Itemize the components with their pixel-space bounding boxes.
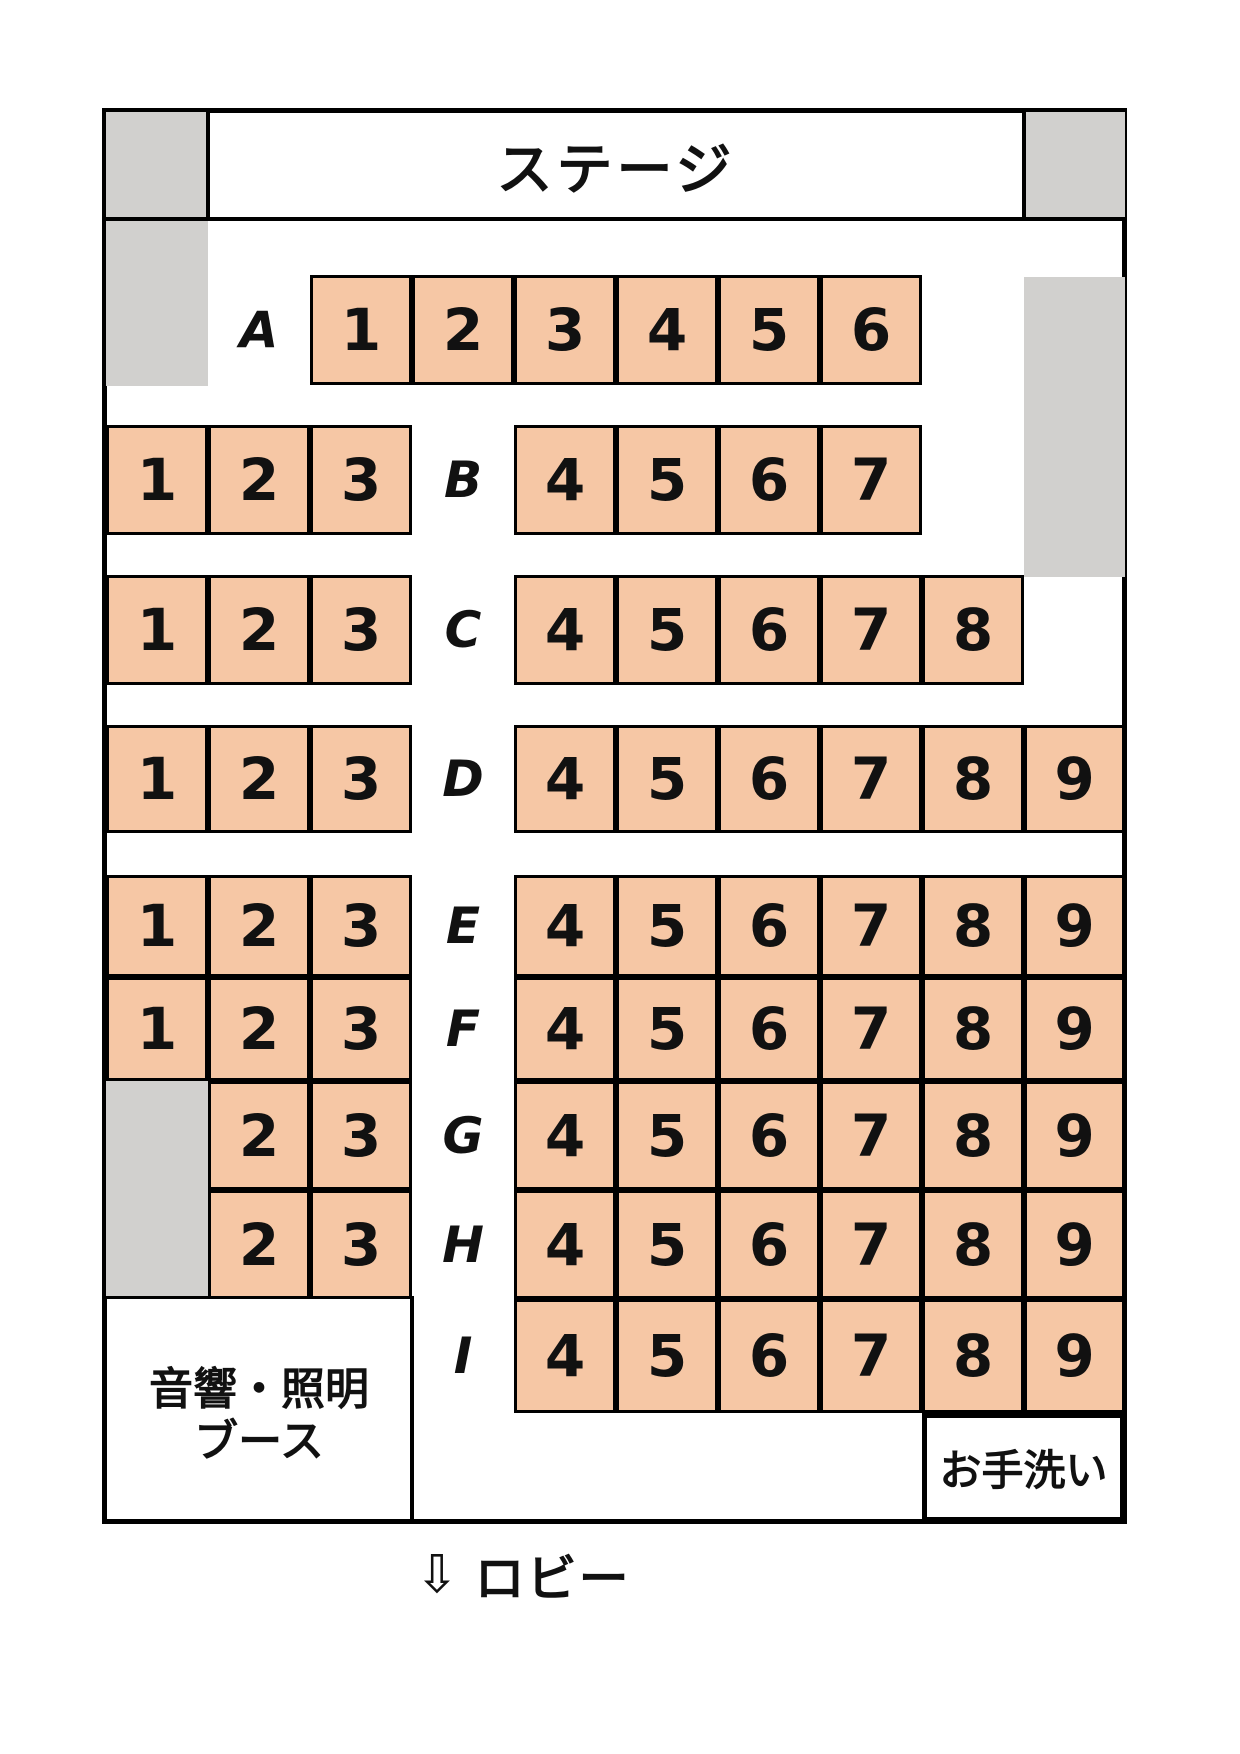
seat-H8[interactable]: 8 (922, 1190, 1024, 1299)
seat-D1[interactable]: 1 (106, 725, 208, 833)
seat-B4[interactable]: 4 (514, 425, 616, 535)
blocked-area-right-strip (1024, 277, 1125, 577)
seat-C6[interactable]: 6 (718, 575, 820, 685)
row-label-H: H (412, 1190, 514, 1299)
blocked-area-top-left-cell (106, 112, 208, 219)
seat-C1[interactable]: 1 (106, 575, 208, 685)
row-label-D: D (412, 725, 514, 833)
seat-H7[interactable]: 7 (820, 1190, 922, 1299)
seat-D2[interactable]: 2 (208, 725, 310, 833)
seat-E2[interactable]: 2 (208, 875, 310, 977)
row-label-I: I (412, 1299, 514, 1413)
seat-C4[interactable]: 4 (514, 575, 616, 685)
seat-G2[interactable]: 2 (208, 1081, 310, 1190)
seat-E6[interactable]: 6 (718, 875, 820, 977)
seat-I8[interactable]: 8 (922, 1299, 1024, 1413)
seat-A6[interactable]: 6 (820, 275, 922, 385)
seat-B2[interactable]: 2 (208, 425, 310, 535)
seat-G9[interactable]: 9 (1024, 1081, 1125, 1190)
seat-G3[interactable]: 3 (310, 1081, 412, 1190)
row-label-E: E (412, 875, 514, 977)
seat-F4[interactable]: 4 (514, 977, 616, 1081)
seat-F8[interactable]: 8 (922, 977, 1024, 1081)
seat-A1[interactable]: 1 (310, 275, 412, 385)
seat-D5[interactable]: 5 (616, 725, 718, 833)
seat-I6[interactable]: 6 (718, 1299, 820, 1413)
seat-B3[interactable]: 3 (310, 425, 412, 535)
blocked-area-left-upper (106, 219, 208, 386)
seat-E1[interactable]: 1 (106, 875, 208, 977)
seat-C2[interactable]: 2 (208, 575, 310, 685)
seat-B5[interactable]: 5 (616, 425, 718, 535)
seat-D3[interactable]: 3 (310, 725, 412, 833)
seat-D6[interactable]: 6 (718, 725, 820, 833)
seat-E3[interactable]: 3 (310, 875, 412, 977)
restroom-box: お手洗い (922, 1413, 1125, 1522)
seat-I9[interactable]: 9 (1024, 1299, 1125, 1413)
seat-D9[interactable]: 9 (1024, 725, 1125, 833)
seat-G5[interactable]: 5 (616, 1081, 718, 1190)
row-label-A: A (208, 275, 310, 385)
seat-G8[interactable]: 8 (922, 1081, 1024, 1190)
seat-D8[interactable]: 8 (922, 725, 1024, 833)
seat-D4[interactable]: 4 (514, 725, 616, 833)
row-label-B: B (412, 425, 514, 535)
restroom-label: お手洗い (939, 1437, 1107, 1498)
seat-A3[interactable]: 3 (514, 275, 616, 385)
seat-E8[interactable]: 8 (922, 875, 1024, 977)
seat-I4[interactable]: 4 (514, 1299, 616, 1413)
seat-E7[interactable]: 7 (820, 875, 922, 977)
seat-C3[interactable]: 3 (310, 575, 412, 685)
seat-F7[interactable]: 7 (820, 977, 922, 1081)
seat-G4[interactable]: 4 (514, 1081, 616, 1190)
seat-E5[interactable]: 5 (616, 875, 718, 977)
seat-I5[interactable]: 5 (616, 1299, 718, 1413)
blocked-area-left-lower (106, 1081, 208, 1299)
blocked-area-top-right-cell (1024, 112, 1125, 219)
seat-F2[interactable]: 2 (208, 977, 310, 1081)
seat-B6[interactable]: 6 (718, 425, 820, 535)
seat-H3[interactable]: 3 (310, 1190, 412, 1299)
seat-I7[interactable]: 7 (820, 1299, 922, 1413)
booth-label-line2: ブース (194, 1416, 324, 1468)
seat-C7[interactable]: 7 (820, 575, 922, 685)
seat-F5[interactable]: 5 (616, 977, 718, 1081)
seat-F3[interactable]: 3 (310, 977, 412, 1081)
seat-B7[interactable]: 7 (820, 425, 922, 535)
seating-chart: ステージ 音響・照明 ブース お手洗い ⇩ ロビー A123456B123456… (0, 0, 1240, 1754)
row-label-C: C (412, 575, 514, 685)
seat-G6[interactable]: 6 (718, 1081, 820, 1190)
seat-A2[interactable]: 2 (412, 275, 514, 385)
seat-E9[interactable]: 9 (1024, 875, 1125, 977)
seat-H2[interactable]: 2 (208, 1190, 310, 1299)
seat-F1[interactable]: 1 (106, 977, 208, 1081)
lobby-label: ロビー (475, 1539, 631, 1611)
seat-G7[interactable]: 7 (820, 1081, 922, 1190)
lobby-indicator: ⇩ ロビー (415, 1543, 715, 1607)
seat-E4[interactable]: 4 (514, 875, 616, 977)
seat-C5[interactable]: 5 (616, 575, 718, 685)
seat-B1[interactable]: 1 (106, 425, 208, 535)
down-arrow-icon: ⇩ (415, 1549, 459, 1601)
booth-label: 音響・照明 ブース (106, 1356, 412, 1476)
seat-C8[interactable]: 8 (922, 575, 1024, 685)
seat-H9[interactable]: 9 (1024, 1190, 1125, 1299)
seat-A4[interactable]: 4 (616, 275, 718, 385)
seat-H6[interactable]: 6 (718, 1190, 820, 1299)
row-label-G: G (412, 1081, 514, 1190)
stage-label: ステージ (208, 112, 1024, 219)
booth-label-line1: 音響・照明 (149, 1364, 369, 1416)
seat-F9[interactable]: 9 (1024, 977, 1125, 1081)
seat-A5[interactable]: 5 (718, 275, 820, 385)
seat-F6[interactable]: 6 (718, 977, 820, 1081)
row-label-F: F (412, 977, 514, 1081)
seat-H5[interactable]: 5 (616, 1190, 718, 1299)
seat-H4[interactable]: 4 (514, 1190, 616, 1299)
seat-D7[interactable]: 7 (820, 725, 922, 833)
